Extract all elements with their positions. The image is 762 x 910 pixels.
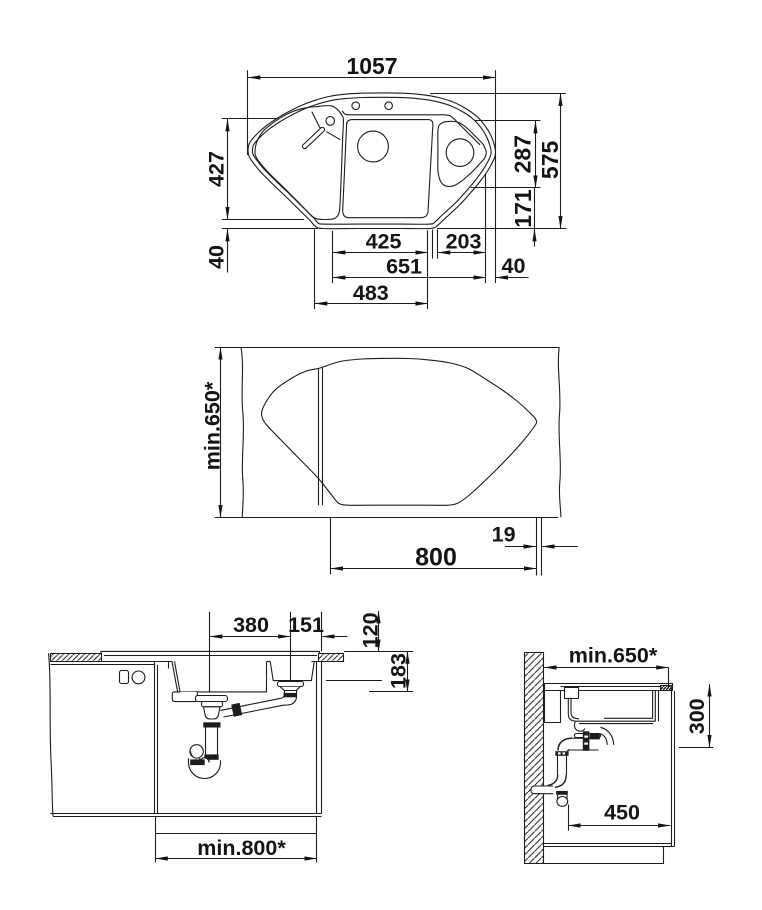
svg-text:171: 171 [510,189,536,228]
svg-text:425: 425 [366,230,402,254]
svg-text:151: 151 [288,613,324,637]
svg-text:40: 40 [205,245,229,269]
svg-text:651: 651 [386,255,422,279]
svg-text:575: 575 [537,141,563,180]
svg-text:427: 427 [205,151,229,187]
svg-text:40: 40 [502,254,526,278]
svg-text:203: 203 [446,230,482,254]
svg-text:300: 300 [685,698,709,734]
svg-text:287: 287 [510,135,536,173]
svg-text:min.650*: min.650* [569,644,658,668]
svg-text:120: 120 [359,612,383,648]
svg-text:800: 800 [415,544,457,572]
svg-text:19: 19 [492,523,516,547]
svg-text:min.650*: min.650* [201,381,225,470]
svg-text:min.800*: min.800* [197,836,286,860]
svg-text:450: 450 [604,801,640,825]
svg-text:1057: 1057 [346,53,397,79]
svg-text:183: 183 [387,653,411,689]
svg-text:483: 483 [353,281,389,305]
svg-text:380: 380 [233,613,269,637]
